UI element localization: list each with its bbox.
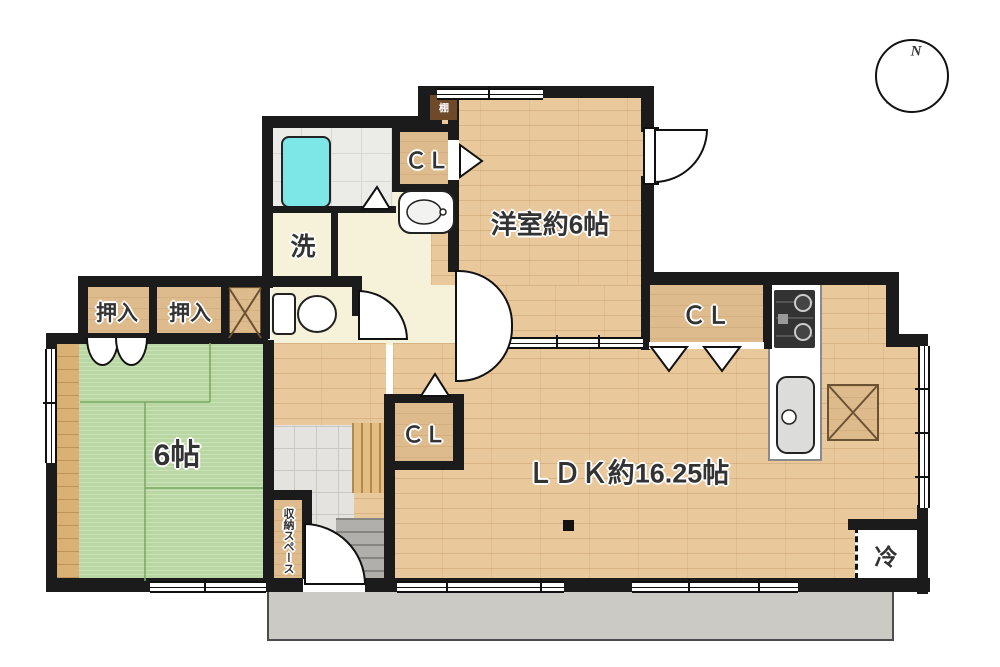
label-western-room: 洋室約6帖 [491, 205, 609, 242]
hall-floor [272, 343, 386, 427]
wall-segment [221, 281, 229, 339]
label-storage-space: 収納スペース [280, 508, 296, 574]
wall-segment [392, 124, 400, 192]
wall-segment [453, 394, 464, 470]
compass-north-label: N [911, 44, 922, 61]
sliding-partition [509, 337, 643, 349]
wall-segment [384, 394, 464, 403]
wall-segment [262, 116, 273, 288]
engawa-strip [55, 343, 79, 583]
wall-segment [261, 281, 270, 339]
window-tick [758, 579, 760, 591]
entrance-porch [267, 590, 894, 641]
label-tatami-room: 6帖 [154, 430, 201, 474]
genkan-step-board [352, 423, 386, 493]
label-laundry: 洗 [290, 227, 315, 263]
label-cl-genkan: ＣＬ [402, 417, 446, 449]
window [397, 581, 564, 593]
storage-xbox-kitchen [827, 384, 879, 441]
door-arc-yoshitsu-exterior [654, 129, 708, 183]
wall-segment [763, 283, 772, 349]
window [437, 88, 543, 100]
cl-door-opening [448, 140, 459, 180]
wall-segment [848, 519, 928, 530]
label-oshiire-left: 押入 [96, 297, 138, 327]
wall-segment [263, 340, 274, 592]
western-room-floor [431, 95, 643, 285]
window [918, 346, 930, 508]
window-tick [488, 86, 490, 98]
cl-kitchen-opening [649, 342, 764, 349]
ldk-dot-marker [563, 520, 574, 531]
window [150, 581, 266, 593]
window-tick [204, 579, 206, 591]
wall-segment [78, 276, 362, 287]
window [45, 349, 57, 463]
wall-segment [392, 184, 458, 192]
window-tick [915, 432, 929, 434]
window-tick [43, 402, 57, 404]
wall-segment [641, 86, 654, 132]
label-oshiire-right: 押入 [169, 297, 211, 327]
storage-xbox-left [228, 286, 262, 340]
label-cl-yoshitsu: ＣＬ [405, 143, 449, 175]
kitchen-counter [768, 283, 822, 461]
window-tick [915, 476, 929, 478]
floor-plan: N 洋室約6帖 ＬＤＫ約16.25帖 6帖 押入 押入 ＣＬ ＣＬ ＣＬ 洗 冷… [0, 0, 1000, 667]
wall-segment [384, 461, 464, 470]
window [632, 581, 798, 593]
wall-segment [641, 176, 654, 280]
wall-segment [392, 124, 458, 132]
label-refrigerator: 冷 [875, 538, 898, 572]
wall-segment [384, 394, 395, 590]
label-shelf: 棚 [439, 100, 449, 115]
label-cl-kitchen: ＣＬ [682, 296, 730, 331]
wall-segment [331, 206, 338, 282]
window-tick [688, 579, 690, 591]
window-tick [446, 579, 448, 591]
window-tick [598, 335, 600, 347]
label-ldk: ＬＤＫ約16.25帖 [527, 452, 730, 491]
bathtub [281, 136, 331, 208]
window-tick [540, 579, 542, 591]
wall-segment [149, 281, 157, 339]
window-tick [556, 335, 558, 347]
window-tick [915, 388, 929, 390]
wall-segment [78, 276, 88, 343]
